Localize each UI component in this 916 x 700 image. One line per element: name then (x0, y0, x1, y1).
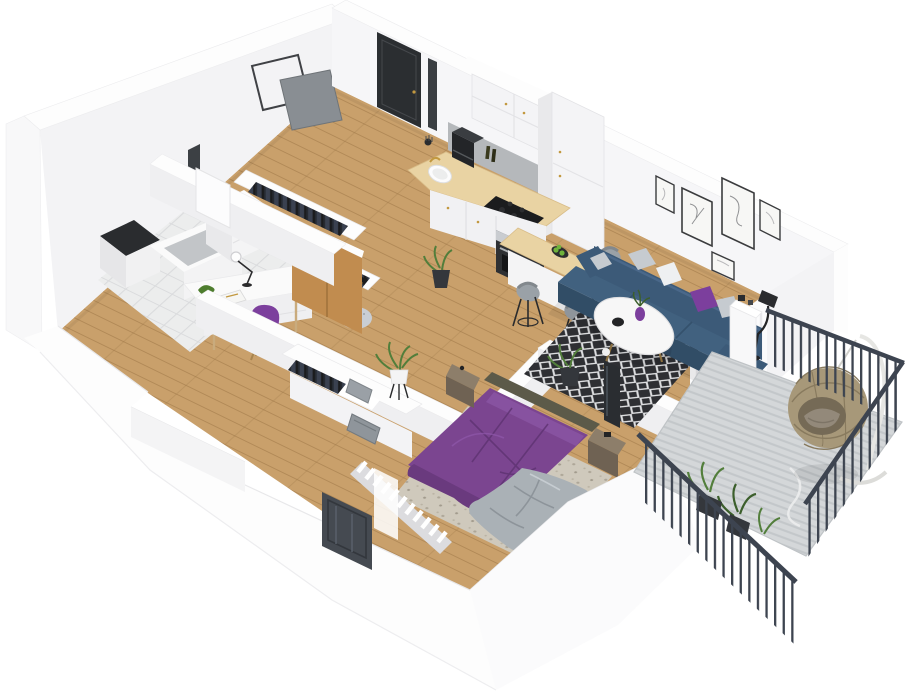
east-outer-edge (834, 244, 848, 334)
nightstand-lamp (460, 366, 464, 370)
purple-vase (635, 307, 645, 321)
plant-pot (390, 370, 408, 384)
nightstand-item (604, 432, 611, 437)
desk-lamp-base (242, 283, 252, 287)
west-outer-wall (6, 116, 42, 352)
floorplan-render-stage (0, 0, 916, 700)
black-bowl (612, 318, 624, 327)
apartment-3d-render (0, 0, 916, 700)
door-handle (412, 90, 415, 93)
decor-ball (602, 348, 610, 356)
sheer-curtain (374, 468, 398, 540)
desk-lamp-shade (231, 252, 241, 262)
hall-mirror (428, 58, 437, 131)
